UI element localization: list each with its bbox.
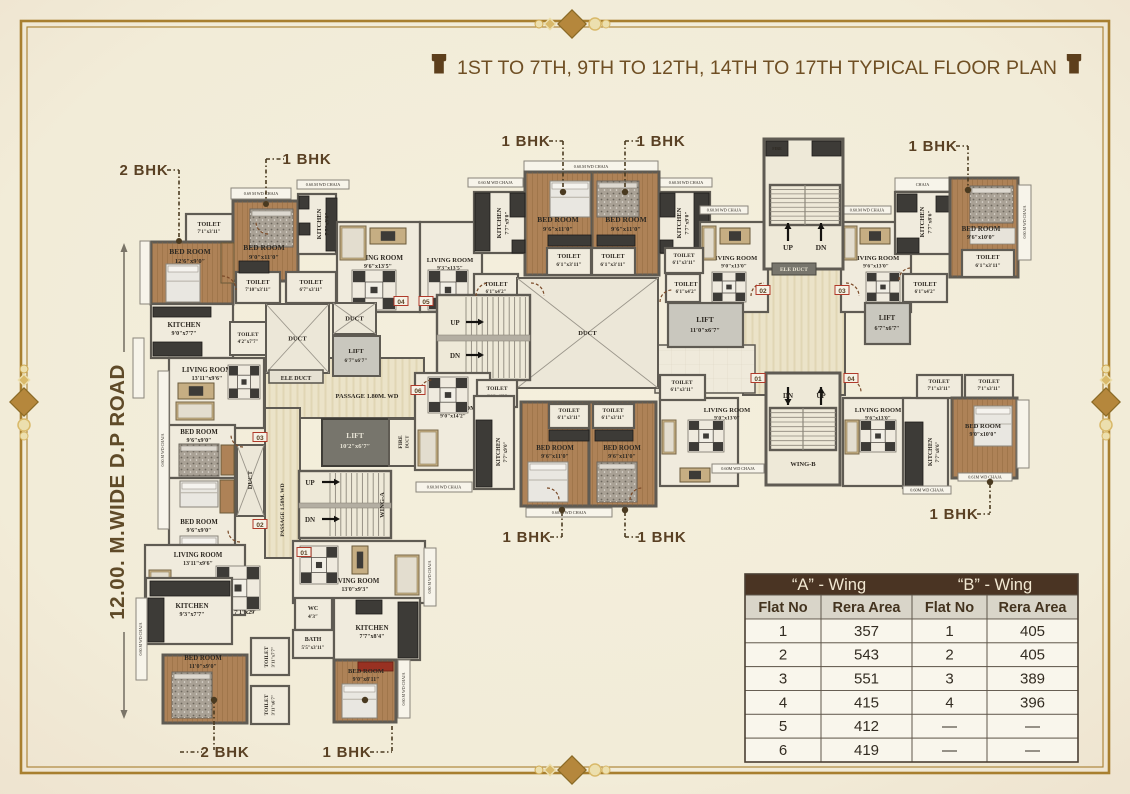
svg-text:396: 396: [1020, 694, 1045, 711]
svg-text:LIVING ROOM: LIVING ROOM: [174, 552, 223, 559]
svg-text:9′0″x10′0″: 9′0″x10′0″: [969, 432, 996, 438]
svg-text:10′2″x6′7″: 10′2″x6′7″: [340, 443, 370, 450]
svg-text:1 BHK: 1 BHK: [282, 151, 331, 168]
svg-text:DN: DN: [305, 516, 315, 524]
svg-text:LIFT: LIFT: [879, 314, 896, 322]
svg-text:BED ROOM: BED ROOM: [180, 519, 218, 526]
svg-text:KITCHEN: KITCHEN: [175, 602, 208, 610]
svg-text:1ST TO 7TH, 9TH TO 12TH, 14TH: 1ST TO 7TH, 9TH TO 12TH, 14TH TO 17TH TY…: [457, 57, 1057, 79]
svg-text:9′6″x11′0″: 9′6″x11′0″: [541, 454, 569, 460]
svg-text:6'1"x4'2": 6'1"x4'2": [915, 290, 936, 295]
svg-text:0.60.M WD CHAJA: 0.60.M WD CHAJA: [306, 182, 341, 187]
svg-text:TOILET: TOILET: [264, 694, 270, 715]
svg-text:12.00. M.WIDE D.P ROAD: 12.00. M.WIDE D.P ROAD: [106, 364, 129, 620]
svg-text:CHAJA: CHAJA: [916, 182, 930, 187]
svg-text:KITCHEN: KITCHEN: [316, 208, 323, 239]
svg-text:412: 412: [854, 718, 879, 735]
svg-text:0.60.M WD CHAJA: 0.60.M WD CHAJA: [1022, 205, 1027, 238]
svg-text:Flat No: Flat No: [925, 600, 974, 616]
svg-text:KITCHEN: KITCHEN: [928, 437, 934, 466]
svg-text:02: 02: [256, 522, 264, 529]
svg-text:7′1″x3′11″: 7′1″x3′11″: [927, 387, 950, 392]
svg-text:9'6"x13'0": 9'6"x13'0": [863, 264, 889, 270]
svg-text:FIRE: FIRE: [398, 435, 404, 448]
svg-text:6′1″x3′11″: 6′1″x3′11″: [600, 262, 625, 268]
svg-text:0.60M WD CHAJA: 0.60M WD CHAJA: [910, 488, 944, 493]
svg-text:3'11"x7'7": 3'11"x7'7": [271, 647, 276, 668]
svg-text:3: 3: [945, 671, 953, 688]
svg-text:—: —: [942, 718, 957, 735]
svg-text:DUCT: DUCT: [288, 336, 307, 343]
svg-text:LIVING ROOM: LIVING ROOM: [711, 255, 757, 262]
svg-text:KITCHEN: KITCHEN: [919, 206, 926, 237]
svg-text:13'11"x9'6": 13'11"x9'6": [183, 561, 213, 567]
svg-text:0.60.M WD CHAJA: 0.60.M WD CHAJA: [707, 208, 742, 213]
svg-text:7'7"x8'4": 7'7"x8'4": [360, 634, 385, 640]
svg-text:6'7"x3'11": 6'7"x3'11": [299, 288, 322, 293]
svg-text:BED ROOM: BED ROOM: [537, 215, 578, 224]
svg-text:1 BHK: 1 BHK: [637, 529, 686, 546]
svg-text:BED ROOM: BED ROOM: [962, 225, 1001, 233]
svg-text:TOILET: TOILET: [264, 646, 270, 667]
svg-text:TOILET: TOILET: [485, 282, 508, 288]
svg-text:UP: UP: [305, 479, 315, 487]
svg-text:BED ROOM: BED ROOM: [184, 655, 222, 662]
svg-text:BED ROOM: BED ROOM: [348, 668, 384, 675]
svg-text:2 BHK: 2 BHK: [119, 162, 168, 179]
svg-text:DUCT: DUCT: [578, 330, 597, 337]
svg-text:LIVING ROOM: LIVING ROOM: [704, 407, 750, 414]
svg-text:BATH: BATH: [305, 637, 322, 643]
svg-text:—: —: [1025, 718, 1040, 735]
svg-text:TOILET: TOILET: [977, 255, 1000, 261]
svg-text:7′1″x3′11″: 7′1″x3′11″: [977, 387, 1000, 392]
svg-text:DN: DN: [783, 392, 793, 400]
svg-text:DUCT: DUCT: [405, 436, 410, 449]
svg-text:7'7"x8'6": 7'7"x8'6": [936, 441, 941, 462]
svg-text:TOILET: TOILET: [672, 380, 693, 386]
svg-text:6′1″x3′11″: 6′1″x3′11″: [556, 262, 581, 268]
svg-text:PASSAGE 1.50M. WD: PASSAGE 1.50M. WD: [280, 483, 286, 536]
svg-text:6′7″x6′7″: 6′7″x6′7″: [345, 358, 368, 364]
svg-text:0.60.M WD CHAJA: 0.60.M WD CHAJA: [669, 180, 704, 185]
svg-text:TOILET: TOILET: [238, 332, 259, 338]
svg-text:TOILET: TOILET: [914, 282, 937, 288]
svg-text:TOILET: TOILET: [675, 282, 698, 288]
svg-text:1 BHK: 1 BHK: [929, 506, 978, 523]
svg-text:BED ROOM: BED ROOM: [605, 215, 646, 224]
svg-text:KITCHEN: KITCHEN: [496, 207, 503, 238]
svg-text:“A” - Wing: “A” - Wing: [792, 576, 866, 594]
svg-text:1 BHK: 1 BHK: [502, 529, 551, 546]
svg-text:7'7"x9'0": 7'7"x9'0": [685, 212, 691, 235]
svg-text:3'11"x6'7": 3'11"x6'7": [271, 695, 276, 716]
svg-text:DN: DN: [816, 243, 827, 252]
svg-text:Flat No: Flat No: [758, 600, 807, 616]
svg-text:Rera Area: Rera Area: [999, 600, 1068, 616]
svg-text:405: 405: [1020, 623, 1045, 640]
svg-text:ELE DUCT: ELE DUCT: [780, 267, 808, 273]
svg-text:1 BHK: 1 BHK: [322, 744, 371, 761]
svg-text:02: 02: [759, 288, 767, 295]
svg-text:9′6″x9′0″: 9′6″x9′0″: [186, 438, 211, 444]
svg-text:9'0"x7'7": 9'0"x7'7": [172, 331, 197, 337]
svg-text:TOILET: TOILET: [603, 408, 624, 414]
svg-text:—: —: [1025, 742, 1040, 759]
svg-text:LIVING ROOM: LIVING ROOM: [182, 366, 232, 374]
svg-text:7'10"x3'11": 7'10"x3'11": [245, 288, 271, 293]
svg-text:DUCT: DUCT: [247, 470, 254, 489]
svg-text:KITCHEN: KITCHEN: [676, 207, 683, 238]
svg-text:1: 1: [779, 623, 787, 640]
svg-text:13'11"x9'6": 13'11"x9'6": [192, 376, 223, 382]
svg-text:0.60.M WD CHAJA: 0.60.M WD CHAJA: [552, 510, 587, 515]
svg-text:TOILET: TOILET: [929, 379, 950, 385]
svg-text:LIVING ROOM: LIVING ROOM: [855, 407, 901, 414]
svg-text:KITCHEN: KITCHEN: [167, 321, 200, 329]
svg-text:7'7"x8'6": 7'7"x8'6": [928, 211, 934, 234]
svg-text:6′1″x3′11″: 6′1″x3′11″: [975, 263, 1000, 269]
svg-text:BED ROOM: BED ROOM: [169, 247, 210, 256]
svg-text:WING-A: WING-A: [379, 492, 386, 518]
svg-text:11′0″x9′0″: 11′0″x9′0″: [189, 664, 217, 670]
svg-text:2 BHK: 2 BHK: [200, 744, 249, 761]
svg-text:9'3"x7'7": 9'3"x7'7": [180, 612, 205, 618]
svg-text:ELE DUCT: ELE DUCT: [281, 376, 312, 382]
svg-text:419: 419: [854, 742, 879, 759]
svg-text:KITCHEN: KITCHEN: [355, 624, 388, 632]
svg-text:0.60.M WD CHAJA: 0.60.M WD CHAJA: [574, 164, 609, 169]
svg-text:4′3″: 4′3″: [308, 614, 318, 620]
svg-text:1 BHK: 1 BHK: [501, 133, 550, 150]
svg-text:0.60M WD CHAJA: 0.60M WD CHAJA: [721, 466, 755, 471]
svg-text:1: 1: [945, 623, 953, 640]
svg-text:FIRE: FIRE: [772, 146, 782, 151]
svg-text:BED ROOM: BED ROOM: [965, 423, 1001, 430]
svg-text:TOILET: TOILET: [247, 280, 270, 286]
svg-text:9′6″x11′0″: 9′6″x11′0″: [608, 454, 636, 460]
svg-text:405: 405: [1020, 647, 1045, 664]
svg-text:WC: WC: [308, 606, 318, 612]
svg-text:05: 05: [422, 299, 430, 306]
svg-text:9′6″x11′0″: 9′6″x11′0″: [543, 226, 573, 233]
svg-text:9′0″x8′11″: 9′0″x8′11″: [353, 677, 380, 683]
svg-text:0.60.M WD CHAJA: 0.60.M WD CHAJA: [160, 433, 165, 466]
svg-text:2: 2: [779, 647, 787, 664]
svg-text:4: 4: [779, 694, 787, 711]
svg-text:0.60.M WD CHAJA: 0.60.M WD CHAJA: [850, 208, 885, 213]
svg-text:7'7"x9'0": 7'7"x9'0": [325, 213, 331, 236]
svg-text:BED ROOM: BED ROOM: [603, 445, 641, 452]
svg-text:3: 3: [779, 671, 787, 688]
svg-text:03: 03: [838, 288, 846, 295]
svg-text:13'0"x9'3": 13'0"x9'3": [341, 587, 368, 593]
svg-text:03: 03: [256, 435, 264, 442]
svg-text:“B” - Wing: “B” - Wing: [958, 576, 1032, 594]
svg-text:—: —: [942, 742, 957, 759]
svg-text:01: 01: [754, 376, 762, 383]
svg-text:7'1"x3'11": 7'1"x3'11": [197, 230, 220, 235]
svg-text:04: 04: [847, 376, 855, 383]
svg-text:TOILET: TOILET: [558, 254, 581, 260]
svg-text:LIFT: LIFT: [346, 431, 364, 440]
svg-text:6′1″x3′11″: 6′1″x3′11″: [601, 416, 624, 421]
svg-text:LIVING ROOM: LIVING ROOM: [427, 257, 473, 264]
svg-text:9'6"x13'5": 9'6"x13'5": [364, 264, 392, 270]
svg-text:PASSAGE 1.80M. WD: PASSAGE 1.80M. WD: [336, 393, 399, 400]
svg-text:6′1″x3′11″: 6′1″x3′11″: [557, 416, 580, 421]
svg-text:BED ROOM: BED ROOM: [536, 445, 574, 452]
svg-text:06: 06: [414, 388, 422, 395]
svg-text:9'0"x13'0": 9'0"x13'0": [721, 264, 747, 270]
svg-text:5′5″x3′11″: 5′5″x3′11″: [301, 646, 324, 651]
svg-text:6′1″x3′11″: 6′1″x3′11″: [670, 388, 693, 393]
svg-text:7'7"x9'0": 7'7"x9'0": [505, 212, 511, 235]
svg-text:415: 415: [854, 694, 879, 711]
svg-text:0.60.M WD CHAJA: 0.60.M WD CHAJA: [401, 672, 406, 705]
svg-text:TOILET: TOILET: [602, 254, 625, 260]
svg-text:6'1"x4'2": 6'1"x4'2": [676, 290, 697, 295]
svg-text:6: 6: [779, 742, 787, 759]
svg-text:TOILET: TOILET: [300, 280, 323, 286]
svg-text:LIFT: LIFT: [348, 348, 364, 355]
svg-text:TOILET: TOILET: [559, 408, 580, 414]
svg-text:TOILET: TOILET: [979, 379, 1000, 385]
svg-text:LIVING ROOM: LIVING ROOM: [853, 255, 899, 262]
svg-text:389: 389: [1020, 671, 1045, 688]
svg-text:TOILET: TOILET: [487, 386, 508, 392]
svg-text:WING-B: WING-B: [790, 461, 816, 468]
svg-text:TOILET: TOILET: [198, 222, 221, 228]
svg-text:1 BHK: 1 BHK: [908, 138, 957, 155]
svg-text:0.60.M WD CHAJA: 0.60.M WD CHAJA: [427, 485, 462, 490]
svg-text:543: 543: [854, 647, 879, 664]
svg-text:BED ROOM: BED ROOM: [180, 429, 218, 436]
svg-text:DUCT: DUCT: [345, 316, 364, 323]
svg-text:0.69 M WD CHAJA: 0.69 M WD CHAJA: [244, 191, 279, 196]
svg-text:1 BHK: 1 BHK: [636, 133, 685, 150]
svg-text:0.80 M WD CHAJA: 0.80 M WD CHAJA: [427, 560, 432, 593]
svg-text:4′2″x7′7″: 4′2″x7′7″: [238, 340, 259, 345]
svg-text:DN: DN: [450, 352, 460, 360]
svg-text:551: 551: [854, 671, 879, 688]
svg-text:Rera Area: Rera Area: [833, 600, 902, 616]
svg-text:9′6″x10′0″: 9′6″x10′0″: [967, 235, 995, 241]
svg-text:TOILET: TOILET: [674, 253, 695, 259]
svg-text:04: 04: [397, 299, 405, 306]
svg-text:9'0"x14'2": 9'0"x14'2": [440, 414, 466, 420]
svg-text:KITCHEN: KITCHEN: [496, 437, 502, 466]
svg-text:11′0″x6′7″: 11′0″x6′7″: [690, 327, 720, 334]
svg-text:2: 2: [945, 647, 953, 664]
svg-text:4: 4: [945, 694, 953, 711]
svg-text:7′1″x29′: 7′1″x29′: [234, 610, 256, 616]
svg-text:0.60.M WD CHAJA: 0.60.M WD CHAJA: [138, 622, 143, 655]
svg-text:01: 01: [300, 550, 308, 557]
svg-text:7'7"x9'0": 7'7"x9'0": [504, 441, 509, 462]
svg-text:6′7″x6′7″: 6′7″x6′7″: [874, 326, 899, 332]
svg-text:LIFT: LIFT: [696, 315, 714, 324]
svg-text:9′6″x9′0″: 9′6″x9′0″: [186, 528, 211, 534]
svg-text:UP: UP: [816, 392, 826, 400]
svg-text:12′6″x9′0″: 12′6″x9′0″: [175, 258, 205, 265]
svg-text:357: 357: [854, 623, 879, 640]
svg-text:0.60.M WD CHAJA: 0.60.M WD CHAJA: [478, 180, 513, 185]
svg-text:UP: UP: [783, 243, 793, 252]
svg-text:5: 5: [779, 718, 787, 735]
svg-text:9′6″x11′0″: 9′6″x11′0″: [611, 226, 641, 233]
svg-text:9′0″x11′0″: 9′0″x11′0″: [249, 254, 279, 261]
svg-text:UP: UP: [450, 319, 460, 327]
svg-text:6′1″x3′11″: 6′1″x3′11″: [672, 261, 695, 266]
svg-text:0.61M WD CHAJA: 0.61M WD CHAJA: [968, 475, 1002, 480]
svg-text:BED ROOM: BED ROOM: [243, 243, 284, 252]
